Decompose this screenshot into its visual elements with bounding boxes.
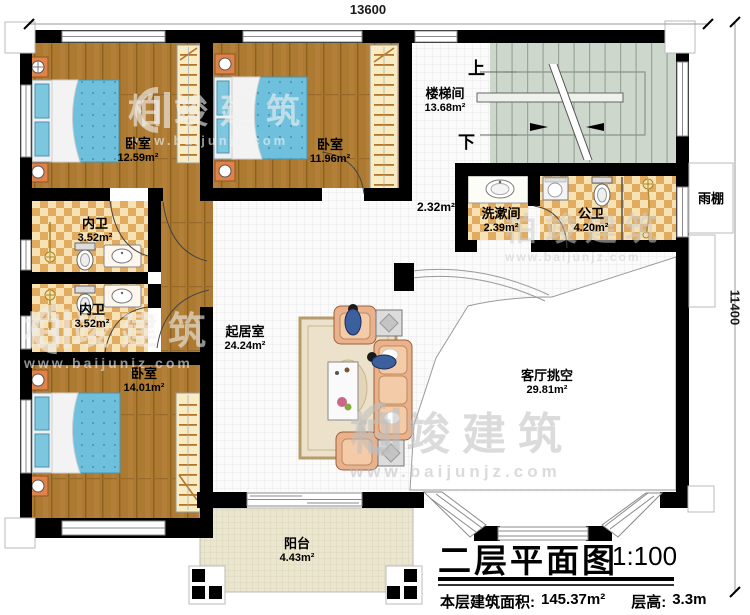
floor-height-value: 3.3m (672, 591, 706, 612)
window-left-2 (21, 240, 31, 270)
hall-connector-floor (412, 163, 455, 188)
window-top-1 (62, 31, 165, 42)
window-right-1 (677, 62, 688, 136)
person-figure (372, 355, 396, 369)
dim-width: 13600 (318, 2, 418, 17)
sink-icon (112, 249, 132, 263)
bed-pillow (217, 119, 229, 153)
lamp-icon (32, 480, 44, 492)
wall-living-south-b (362, 492, 424, 508)
window-top-3 (415, 31, 457, 42)
title-underline-thick (438, 577, 674, 581)
dim-height: 11400 (728, 273, 743, 343)
wall-bedrooms-south-b (148, 188, 163, 201)
table-cup (335, 371, 339, 375)
wall-bath-south-a (455, 240, 477, 252)
toilet-bowl (598, 188, 607, 202)
lamp-icon (219, 165, 231, 177)
staircase (477, 43, 676, 163)
title-underline-thin (438, 584, 674, 586)
wall-ensuite-divider (32, 272, 148, 284)
column (394, 263, 414, 291)
plan-scale: 1:100 (612, 541, 677, 572)
wall-bed1-bed2 (200, 43, 213, 201)
lamp-icon (32, 166, 44, 178)
washing-machine-panel (545, 178, 566, 182)
window-left-3 (21, 316, 31, 349)
coffee-table (328, 362, 358, 420)
wall-bed2-stair (399, 30, 412, 195)
wall-ensuite2-right (148, 284, 161, 308)
toilet-tank (75, 243, 95, 250)
sink-basin (491, 184, 509, 195)
stair-down-label: 下 (458, 128, 475, 153)
wall-bath-north (455, 163, 689, 176)
stair-up-label: 上 (468, 54, 485, 79)
stair-handrail (477, 93, 623, 102)
floor-area-label: 本层建筑面积: (440, 591, 535, 612)
balcony-sliding-door (247, 493, 362, 506)
wall-washroom-left (455, 163, 468, 252)
table-flowers (345, 404, 352, 411)
railing-post (192, 569, 205, 582)
living-room-furniture (300, 304, 412, 470)
floor-area-value: 145.37m² (541, 591, 605, 612)
table-cup (345, 368, 350, 373)
wall-washroom-pubbath (528, 176, 540, 206)
corner-mark-bottom-right (688, 486, 714, 512)
toilet-tank (75, 286, 95, 293)
throw-pillow (384, 412, 400, 424)
window-right-2 (677, 187, 688, 237)
floor-plan-drawing (0, 0, 750, 615)
bed-pillow (35, 84, 49, 118)
balcony-floor (200, 508, 413, 592)
railing-post (387, 586, 400, 599)
window-top-2 (243, 31, 362, 42)
canopy-outline (689, 163, 733, 233)
person-figure (345, 309, 361, 335)
wall-ensuite1-right (148, 201, 161, 272)
faucet-dot (499, 181, 502, 184)
wall-bedroom3-north (20, 352, 213, 365)
wall-bedrooms-south-a (20, 188, 110, 201)
canopy-outline-2 (689, 235, 715, 307)
corner-mark-top-left (5, 22, 35, 53)
corner-mark-bottom-left (5, 518, 35, 548)
bed-pillow (35, 434, 49, 467)
bay-window-left (424, 492, 486, 537)
lamp-icon (219, 58, 231, 70)
plan-subtitle: 本层建筑面积: 145.37m² 层高: 3.3m (440, 591, 706, 612)
bed-pillow (35, 122, 49, 156)
corner-mark-top-right (665, 21, 695, 53)
wall-bedrooms-south-c (203, 188, 322, 201)
toilet-tank (592, 177, 612, 183)
wall-bedrooms-south-d (364, 188, 412, 201)
railing-post (404, 586, 417, 599)
floor-plan-page: 13600 11400 卧室 12.59m² 卧室 11.96m² 楼梯间 13… (0, 0, 750, 615)
toilet-bowl (81, 298, 90, 311)
floor-height-label: 层高: (631, 591, 666, 612)
railing-post (209, 586, 222, 599)
plan-title: 二层平面图 (438, 534, 618, 582)
sink-drain (121, 252, 123, 254)
washroom-fixtures (468, 176, 528, 203)
wall-bath-south-b (531, 240, 689, 252)
armchair-cushion (342, 439, 372, 465)
wall-corridor-right (200, 307, 213, 352)
sink-icon (112, 289, 132, 303)
sink-drain (121, 292, 123, 294)
window-bottom-left (62, 521, 165, 535)
wall-living-south-a (197, 492, 247, 508)
subtitle-spacer (611, 591, 625, 612)
window-left-1 (21, 85, 31, 157)
bay-window-right (602, 493, 662, 537)
bed-pillow (217, 81, 229, 115)
wall-living-south-c (660, 492, 689, 508)
washing-machine-drum (548, 183, 562, 197)
railing-post (404, 569, 417, 582)
lamp-icon (32, 374, 44, 386)
bed-pillow (35, 397, 49, 430)
railing-post (192, 586, 205, 599)
window-left-4 (21, 400, 31, 473)
toilet-bowl (81, 254, 90, 267)
sofa-cushion (379, 376, 407, 404)
